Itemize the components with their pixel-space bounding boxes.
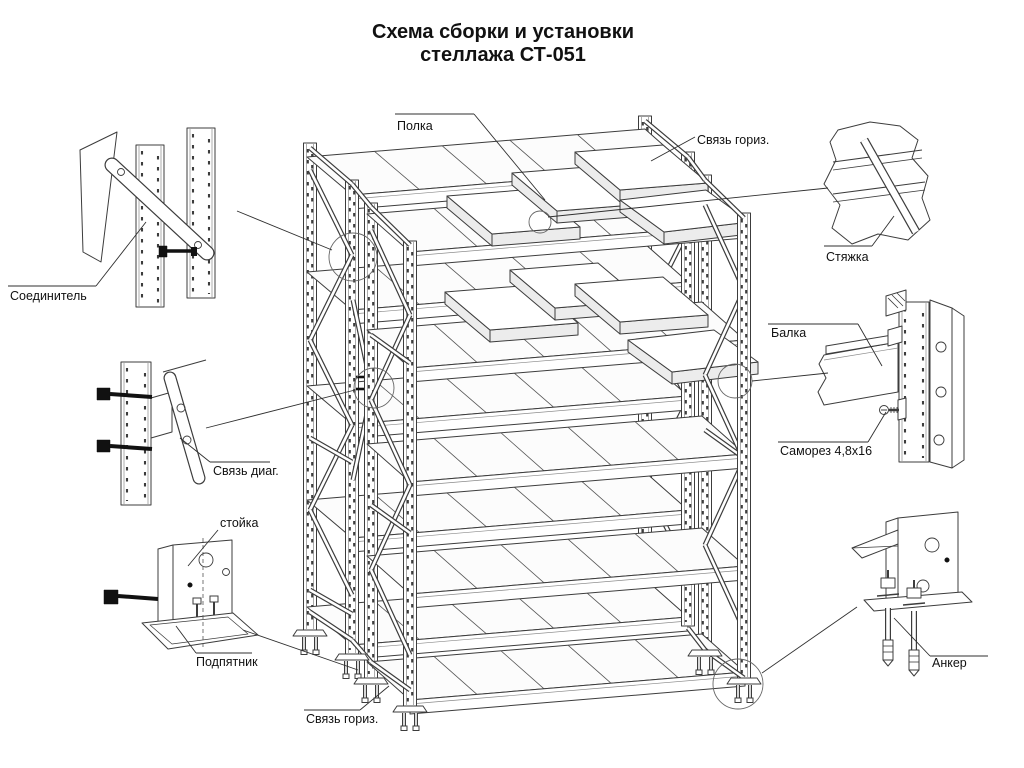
label-horizontal-tie-bottom: Связь гориз.	[306, 712, 378, 726]
label-coupler: Стяжка	[826, 250, 869, 264]
diagram-linework	[8, 114, 988, 731]
label-connector: Соединитель	[10, 289, 87, 303]
page-title-line2: стеллажа СТ-051	[420, 44, 586, 66]
assembly-diagram: Схема сборки и установки стеллажа СТ-051…	[0, 0, 1024, 768]
label-post: стойка	[220, 516, 259, 530]
label-shelf: Полка	[397, 119, 433, 133]
page-title-line1: Схема сборки и установки	[372, 21, 634, 43]
label-footplate: Подпятник	[196, 655, 258, 669]
label-anchor: Анкер	[932, 656, 967, 670]
label-diagonal-tie: Связь диаг.	[213, 464, 279, 478]
label-screw: Саморез 4,8х16	[780, 444, 872, 458]
label-beam: Балка	[771, 326, 806, 340]
label-horizontal-tie-top: Связь гориз.	[697, 133, 769, 147]
